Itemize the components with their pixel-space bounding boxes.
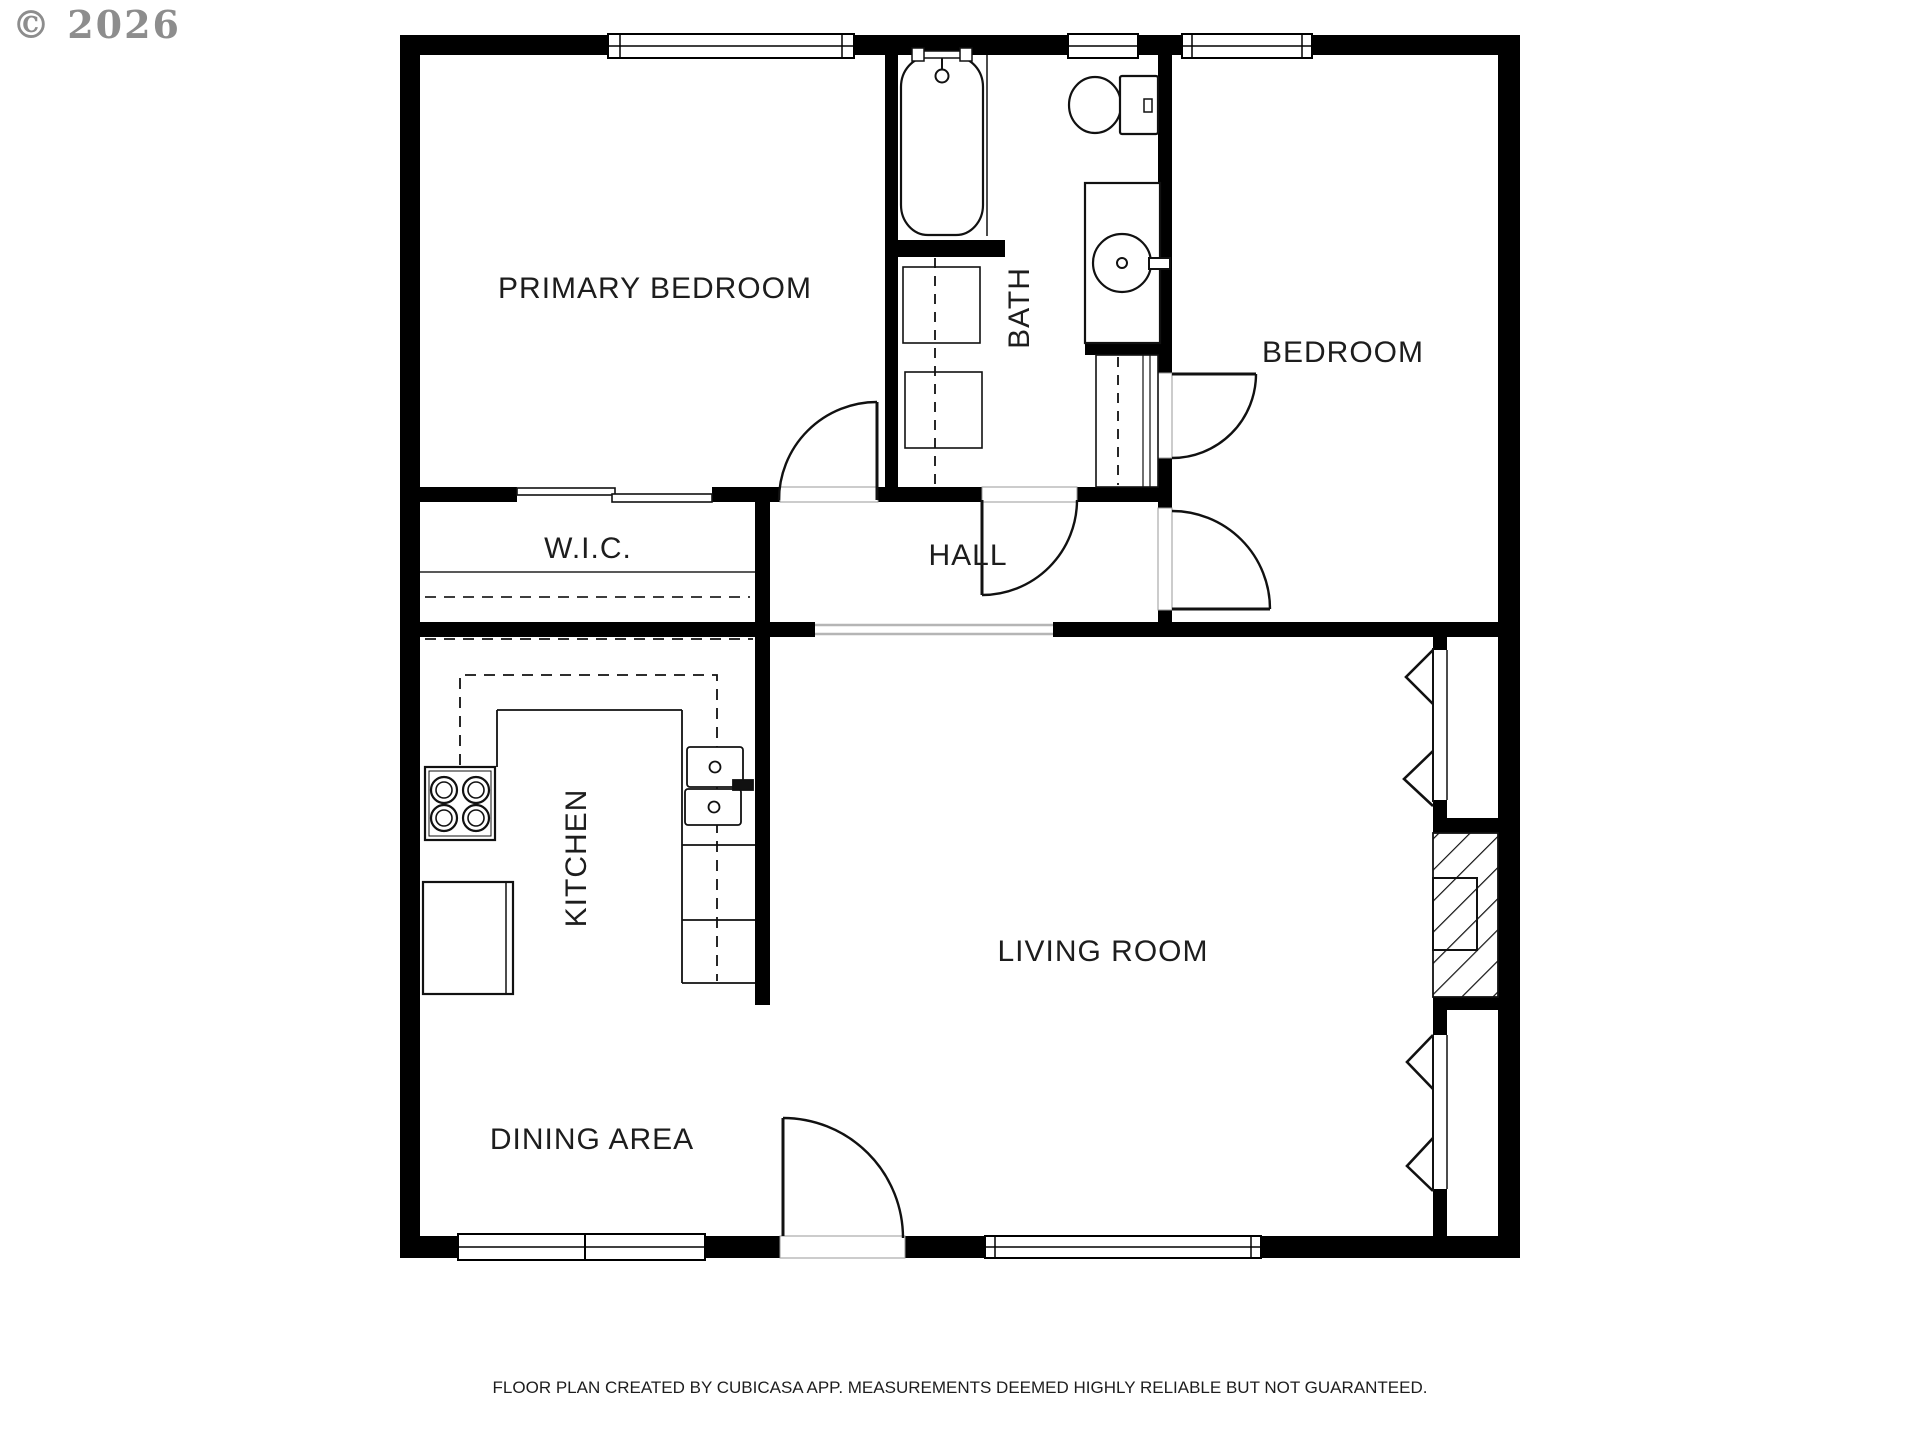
- wall-bath-east-b: [1158, 458, 1172, 508]
- casement-chevron-3: [1407, 1035, 1433, 1089]
- window-bedroom: [1182, 34, 1312, 58]
- bedroom-closet-door: [1172, 374, 1256, 458]
- room-label-bath: BATH: [1003, 267, 1037, 349]
- doors: [517, 374, 1270, 1238]
- bedroom-door: [1172, 511, 1270, 609]
- entry-door: [783, 1118, 903, 1238]
- wall-hall-south: [1053, 622, 1500, 637]
- room-label-kitchen: KITCHEN: [560, 789, 594, 928]
- stove: [425, 767, 495, 840]
- threshold-pbedroom-door: [780, 487, 878, 502]
- tub-faucet-cap-left: [912, 48, 924, 61]
- primary-bedroom-door: [779, 402, 877, 500]
- tub-faucet-cap-right: [960, 48, 972, 61]
- wall-bay-stub-3: [1433, 1010, 1447, 1035]
- toilet: [1069, 76, 1158, 134]
- vanity-faucet: [1149, 258, 1170, 269]
- window-primary-bedroom: [608, 34, 854, 58]
- fireplace: [1433, 833, 1498, 997]
- window-dining-left: [458, 1234, 585, 1260]
- door-openings: [780, 373, 1172, 1258]
- room-label-bedroom: BEDROOM: [1262, 336, 1424, 370]
- kitchen-sink: [685, 747, 753, 825]
- wall-bay-stub-4: [1433, 1189, 1447, 1238]
- wall-bay-stub-1: [1433, 637, 1447, 650]
- kitchen-faucet: [733, 780, 753, 790]
- wall-pbedroom-south-b: [712, 487, 780, 502]
- threshold-bedroom-door: [1158, 508, 1172, 610]
- wall-outer-left: [400, 35, 420, 1258]
- threshold-closet-door: [1158, 373, 1172, 458]
- wall-fireplace-top: [1433, 818, 1500, 833]
- wall-fireplace-bottom: [1433, 997, 1500, 1010]
- wall-tub-end: [898, 240, 1005, 257]
- room-label-primary-bedroom: PRIMARY BEDROOM: [498, 272, 812, 306]
- wall-bay-stub-2: [1433, 800, 1447, 818]
- window-living-room: [985, 1236, 1261, 1258]
- wall-bath-west: [885, 55, 898, 502]
- refrigerator: [423, 882, 513, 994]
- floor-plan: [0, 0, 1920, 1440]
- wall-bath-south-a: [898, 487, 982, 502]
- wall-wic-south: [400, 622, 815, 637]
- tub-spout: [936, 70, 949, 83]
- threshold-entry-door: [780, 1236, 905, 1258]
- room-label-wic: W.I.C.: [544, 532, 632, 566]
- hall-closet: [1096, 355, 1158, 487]
- wall-pbedroom-south-c: [878, 487, 898, 502]
- wall-kitchen-east: [755, 500, 770, 1005]
- wall-outer-right: [1498, 35, 1520, 1258]
- casement-chevron-1: [1406, 650, 1433, 704]
- room-label-dining-area: DINING AREA: [490, 1123, 694, 1157]
- casement-chevron-4: [1407, 1138, 1433, 1191]
- toilet-flush-button: [1144, 99, 1152, 112]
- room-label-living-room: LIVING ROOM: [997, 935, 1208, 969]
- wall-closet-top: [1085, 343, 1158, 355]
- wall-pbedroom-south-a: [420, 487, 517, 502]
- window-dining-right: [585, 1234, 705, 1260]
- bath-cabinets: [903, 258, 982, 484]
- open-boundary: [815, 625, 1053, 634]
- wic-bypass-door: [517, 488, 712, 502]
- footer-disclaimer: FLOOR PLAN CREATED BY CUBICASA APP. MEAS…: [493, 1378, 1428, 1398]
- wic-interior: [420, 572, 755, 597]
- threshold-bath-door: [982, 487, 1077, 502]
- vanity-sink: [1085, 183, 1170, 343]
- room-label-hall: HALL: [928, 539, 1007, 573]
- window-bath: [1068, 34, 1138, 58]
- casement-chevron-2: [1404, 751, 1433, 806]
- wall-bath-south-b: [1077, 487, 1172, 502]
- fireplace-hatched-body: [1433, 833, 1498, 997]
- bathtub: [901, 48, 987, 236]
